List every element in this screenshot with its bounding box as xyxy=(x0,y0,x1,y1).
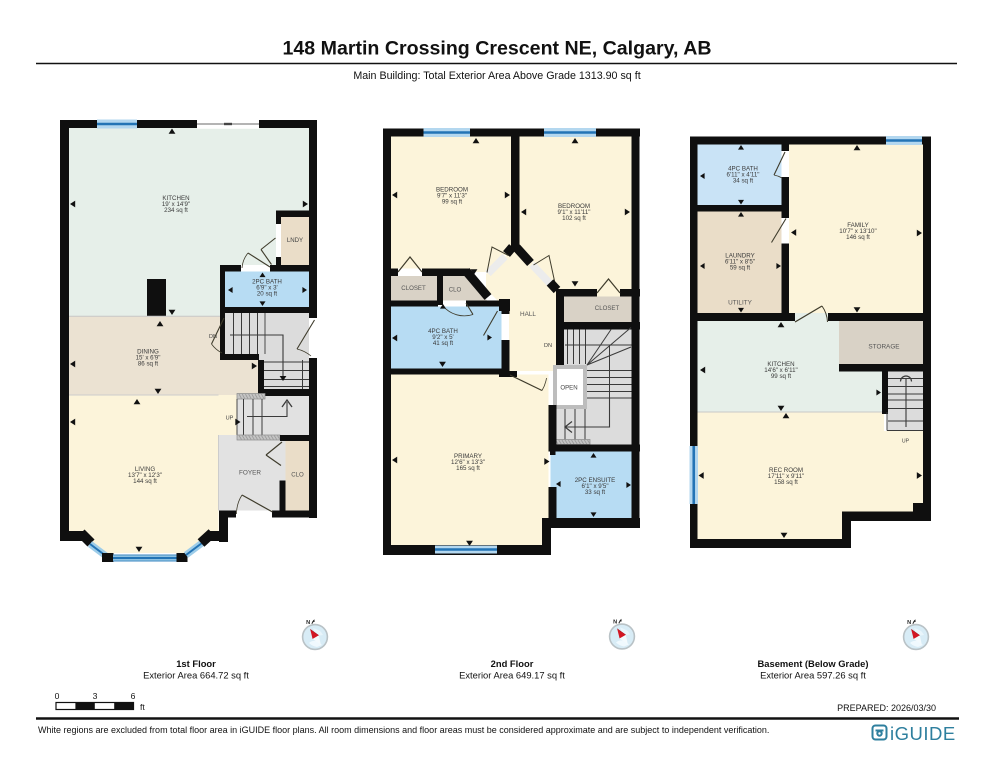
svg-text:PREPARED: 2026/03/30: PREPARED: 2026/03/30 xyxy=(837,703,936,713)
svg-text:CLO: CLO xyxy=(291,472,304,479)
svg-text:33 sq ft: 33 sq ft xyxy=(585,489,606,496)
svg-text:N: N xyxy=(613,620,617,626)
svg-text:CLOSET: CLOSET xyxy=(401,285,426,292)
svg-text:2nd Floor: 2nd Floor xyxy=(491,658,534,669)
svg-text:234 sq ft: 234 sq ft xyxy=(164,207,188,214)
svg-text:Basement (Below Grade): Basement (Below Grade) xyxy=(758,658,869,669)
svg-text:86 sq ft: 86 sq ft xyxy=(138,361,159,368)
svg-text:DN: DN xyxy=(544,343,552,349)
svg-text:HALL: HALL xyxy=(520,311,536,318)
svg-text:UP: UP xyxy=(226,416,234,422)
svg-text:34 sq ft: 34 sq ft xyxy=(733,178,754,185)
svg-text:3: 3 xyxy=(93,691,98,701)
svg-text:Main Building: Total Exterior: Main Building: Total Exterior Area Above… xyxy=(353,70,640,82)
svg-text:144 sq ft: 144 sq ft xyxy=(133,478,157,485)
svg-text:148 Martin Crossing Crescent N: 148 Martin Crossing Crescent NE, Calgary… xyxy=(282,38,711,60)
svg-text:0: 0 xyxy=(55,691,60,701)
svg-text:20 sq ft: 20 sq ft xyxy=(257,291,278,298)
svg-text:59 sq ft: 59 sq ft xyxy=(730,265,751,272)
svg-text:White regions are excluded fro: White regions are excluded from total fl… xyxy=(38,725,769,735)
svg-text:Exterior Area 649.17 sq ft: Exterior Area 649.17 sq ft xyxy=(459,670,565,681)
svg-text:Exterior Area 664.72 sq ft: Exterior Area 664.72 sq ft xyxy=(143,670,249,681)
svg-text:146 sq ft: 146 sq ft xyxy=(846,234,870,241)
svg-text:UTILITY: UTILITY xyxy=(728,300,753,307)
svg-text:N: N xyxy=(306,620,310,626)
svg-text:Exterior Area 597.26 sq ft: Exterior Area 597.26 sq ft xyxy=(760,670,866,681)
svg-text:CLOSET: CLOSET xyxy=(595,305,620,312)
svg-text:165 sq ft: 165 sq ft xyxy=(456,465,480,472)
svg-text:STORAGE: STORAGE xyxy=(868,344,899,351)
svg-text:6: 6 xyxy=(131,691,136,701)
svg-text:41 sq ft: 41 sq ft xyxy=(433,340,454,347)
svg-text:99 sq ft: 99 sq ft xyxy=(771,373,792,380)
svg-text:LNDY: LNDY xyxy=(287,237,303,244)
svg-text:158 sq ft: 158 sq ft xyxy=(774,479,798,486)
svg-text:FOYER: FOYER xyxy=(239,470,261,477)
svg-text:1st Floor: 1st Floor xyxy=(176,658,216,669)
svg-text:N: N xyxy=(907,620,911,626)
svg-text:UP: UP xyxy=(902,439,910,445)
svg-text:99 sq ft: 99 sq ft xyxy=(442,199,463,206)
svg-text:OPEN: OPEN xyxy=(560,385,577,392)
svg-text:CLO: CLO xyxy=(449,287,462,294)
svg-text:102 sq ft: 102 sq ft xyxy=(562,215,586,222)
svg-text:ft: ft xyxy=(140,702,145,712)
svg-text:iGUIDE: iGUIDE xyxy=(890,723,956,744)
